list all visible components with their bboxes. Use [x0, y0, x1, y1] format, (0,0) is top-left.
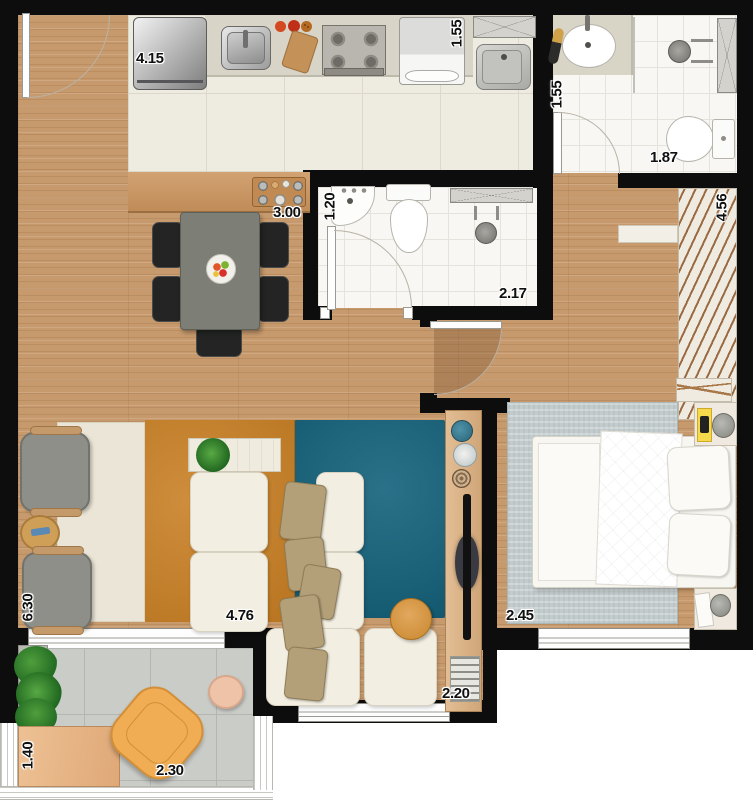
dimension-living-width: 4.76 [226, 607, 254, 624]
outside-right-of-balcony [273, 716, 303, 800]
bath1-niche [717, 18, 737, 93]
wall-tv-back-lower [483, 650, 497, 723]
bed-pillow-1 [666, 444, 731, 511]
armchair-south-arm-top [32, 546, 84, 555]
armchair-south-arm-bottom [32, 626, 84, 635]
nightstand-north-phone [700, 416, 709, 433]
washing-machine-door [405, 70, 459, 82]
dimension-counter-length: 3.00 [273, 204, 301, 221]
dimension-bedroom-width: 2.45 [506, 607, 534, 624]
dimension-bathroom2-width: 1.20 [322, 182, 339, 232]
bath1-faucet [585, 15, 590, 31]
wall-top [0, 0, 753, 15]
sofa-pillow-4 [278, 593, 325, 652]
laundry-tank-drain [501, 54, 507, 60]
dimension-tv-wall-length: 2.20 [442, 685, 470, 702]
wall-bedroom-door-stub-bottom [420, 393, 437, 413]
wall-bedroom-bottom-right [690, 628, 753, 650]
wall-right [737, 0, 753, 650]
balcony-side-table [208, 675, 244, 709]
dimension-balcony-length: 2.30 [156, 762, 184, 779]
tomato-decor-1 [275, 21, 286, 32]
fridge-handle [137, 80, 203, 83]
bath1-toilet-button [721, 136, 726, 141]
laundry-overhead-cabinet [473, 16, 536, 38]
bath2-sink-drain [347, 198, 353, 204]
wall-left [0, 15, 18, 723]
dimension-bathroom2-length: 2.17 [499, 285, 527, 302]
fruit-plate [206, 254, 236, 284]
outside-bottom-mid [303, 723, 497, 800]
tv-screen [463, 494, 471, 640]
bath2-door-jamb-right [403, 307, 413, 319]
wall-tv-back [482, 413, 497, 650]
closet-shelf-return [618, 225, 678, 243]
outside-bottom-right [497, 650, 753, 800]
bath1-shower-head [668, 40, 691, 63]
lamp-south [710, 594, 731, 617]
bed-pillow-2 [666, 512, 731, 577]
sofa-pillow-5 [283, 646, 328, 702]
bath1-sink-drain [585, 42, 591, 48]
wall-bedroom-bottom-left [480, 628, 540, 650]
bath1-shower-pipes [691, 36, 713, 66]
kitchen-faucet [243, 30, 248, 48]
bedroom-bench [676, 378, 732, 402]
bedroom-window [538, 628, 690, 649]
lamp-north [712, 413, 735, 438]
dimension-living-length: 6.30 [20, 583, 37, 633]
dimension-bathroom1-width: 1.55 [549, 70, 566, 120]
dimension-closet-length: 4.56 [714, 183, 731, 233]
sofa-chaise [364, 628, 437, 706]
spice-bowl [301, 21, 312, 32]
sofa-pillow-1 [279, 481, 328, 544]
bath2-shower-mixer [470, 206, 506, 220]
decor-plate-rattan [452, 469, 471, 488]
cup-tray [252, 177, 306, 207]
wall-bath2-right [537, 187, 553, 320]
dimension-balcony-depth: 1.40 [20, 731, 37, 781]
balcony-railing-right [253, 716, 273, 790]
balcony-railing-bottom [0, 786, 273, 800]
dining-chair-ne [257, 222, 289, 268]
dining-chair-se [257, 276, 289, 322]
bedroom-door-leaf [430, 321, 502, 329]
decor-plate-teal [451, 420, 473, 442]
bath1-shower-glass [633, 17, 635, 93]
ottoman [390, 598, 432, 640]
armchair-north [20, 432, 90, 512]
dimension-laundry-width: 1.55 [449, 9, 466, 59]
dimension-bathroom1-length: 1.87 [650, 149, 678, 166]
bed-sheet [538, 443, 600, 581]
console-plant [196, 438, 230, 472]
bath2-faucet-dots [341, 188, 367, 193]
floor-plan: 4.15 1.55 1.55 1.87 3.00 1.20 2.17 4.56 … [0, 0, 753, 800]
armchair-north-arm-top [30, 426, 82, 435]
bath2-shower-head [475, 222, 497, 244]
dimension-kitchen-width: 4.15 [136, 50, 164, 67]
bath2-shower-niche [450, 188, 533, 203]
stove-control-strip [324, 68, 384, 76]
sofa-module-1 [190, 472, 268, 552]
decor-plate-white [453, 443, 477, 467]
